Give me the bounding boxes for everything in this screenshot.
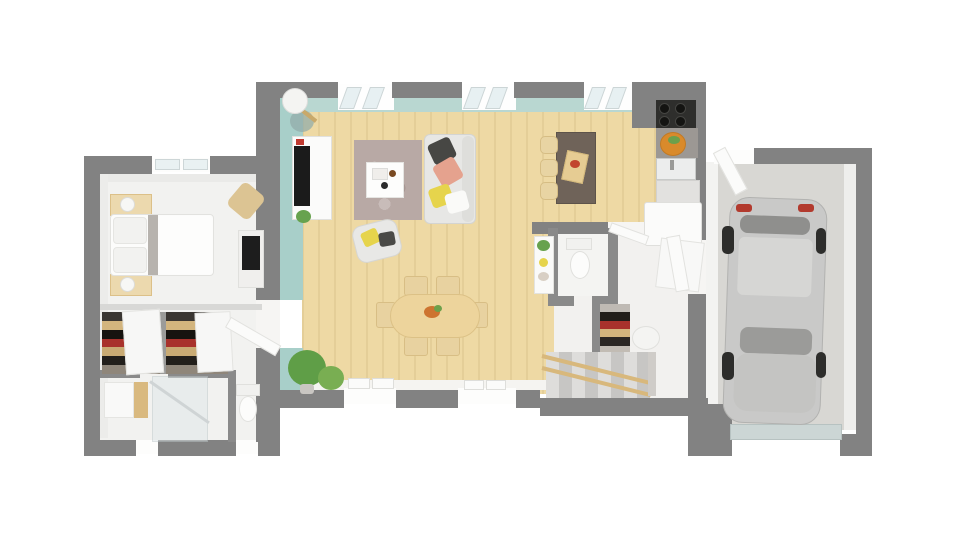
- shelf-item: [538, 272, 549, 281]
- door-pane: [486, 380, 506, 390]
- partition: [100, 304, 262, 310]
- car-wheel: [816, 352, 826, 378]
- desk-monitor: [242, 236, 260, 270]
- dining-chair: [404, 336, 428, 356]
- wall-segment: [754, 148, 872, 164]
- bed-pillow: [113, 247, 147, 273]
- shoe-rack: [600, 304, 630, 354]
- wall-segment: [84, 440, 136, 456]
- toilet-bowl: [239, 396, 257, 422]
- shoe-rack-stripe: [600, 337, 630, 345]
- hall-pouf: [632, 326, 660, 350]
- car-wheel: [722, 226, 734, 254]
- wall-segment: [228, 370, 236, 442]
- burner: [675, 103, 686, 114]
- dining-chair: [436, 276, 460, 296]
- shower-glass: [152, 376, 208, 442]
- shoe-rack-stripe: [600, 312, 630, 320]
- fruit-plate-greens: [668, 136, 680, 144]
- cutting-board-food: [570, 160, 580, 168]
- shoe-rack-stripe: [600, 304, 630, 312]
- kitchen-sink: [656, 158, 696, 180]
- window-pane: [183, 159, 208, 170]
- bedroom-wall-face-top: [100, 174, 260, 182]
- shelf-plant: [537, 240, 550, 251]
- car-windshield: [740, 327, 813, 355]
- bar-stool: [540, 136, 558, 154]
- wall-segment: [592, 306, 600, 358]
- burner: [659, 116, 670, 127]
- bed-blanket: [148, 215, 158, 275]
- coffee-item: [381, 182, 388, 189]
- burner: [675, 116, 686, 127]
- door-opening: [458, 388, 516, 404]
- coffee-table-tray: [372, 168, 388, 180]
- wc-toilet-bowl: [570, 251, 590, 279]
- wall-segment: [540, 398, 708, 416]
- closet-door-panel: [122, 309, 164, 375]
- wall-segment: [688, 294, 706, 404]
- car-taillight: [736, 204, 752, 212]
- table-lamp: [120, 277, 135, 292]
- wall-segment: [84, 156, 100, 456]
- door-pane: [464, 380, 484, 390]
- toilet-tank: [236, 384, 260, 396]
- door-opening: [136, 440, 158, 454]
- floor-lamp-shade: [282, 88, 308, 114]
- wall-segment: [258, 440, 280, 456]
- fruit-bowl-leaf: [434, 305, 442, 312]
- wall-segment: [608, 228, 618, 306]
- coffee-cup: [389, 170, 396, 177]
- bar-stool: [540, 182, 558, 200]
- tv-screen: [294, 146, 310, 206]
- car-roof: [737, 237, 813, 298]
- wall-segment: [532, 222, 608, 234]
- car-rear-window: [740, 215, 811, 235]
- plant: [318, 366, 344, 390]
- car-hood: [733, 353, 817, 414]
- bar-stool: [540, 159, 558, 177]
- wall-segment: [548, 296, 574, 306]
- window-opening: [344, 388, 396, 404]
- wc-toilet-tank: [566, 238, 592, 250]
- burner: [659, 103, 670, 114]
- staircase-stripe: [585, 352, 598, 398]
- sink-faucet: [670, 160, 674, 170]
- car-taillight: [798, 204, 814, 212]
- plant-pot: [300, 384, 314, 394]
- wall-segment: [392, 82, 462, 98]
- bathroom-vanity: [104, 382, 134, 418]
- garage-door-panel: [730, 424, 842, 440]
- shelf-lemon: [539, 258, 548, 267]
- vanity-wood-side: [134, 382, 148, 418]
- car-wheel: [722, 352, 734, 380]
- wall-segment: [856, 148, 872, 450]
- dining-chair: [404, 276, 428, 296]
- wall-segment: [158, 440, 236, 456]
- bed-duvet: [158, 216, 212, 274]
- bed-pillow: [113, 217, 147, 244]
- wall-segment: [840, 434, 872, 456]
- shoe-rack-stripe: [600, 329, 630, 337]
- garage-wall-face-left: [704, 162, 718, 430]
- window-pane: [372, 378, 394, 389]
- wall-segment: [516, 390, 540, 408]
- window-pane: [348, 378, 370, 389]
- table-lamp: [120, 197, 135, 212]
- car-wheel: [816, 228, 826, 254]
- wall-segment: [514, 82, 584, 98]
- armchair-pillow: [378, 231, 396, 248]
- door-opening: [236, 440, 258, 454]
- tv-stand-plant: [296, 210, 311, 223]
- tv-stand-decor: [296, 139, 304, 145]
- shoe-rack-stripe: [600, 321, 630, 329]
- window-pane: [155, 159, 180, 170]
- dining-chair: [436, 336, 460, 356]
- floorplan-canvas: [0, 0, 960, 540]
- stair-newel: [648, 352, 656, 396]
- wall-segment: [396, 390, 458, 408]
